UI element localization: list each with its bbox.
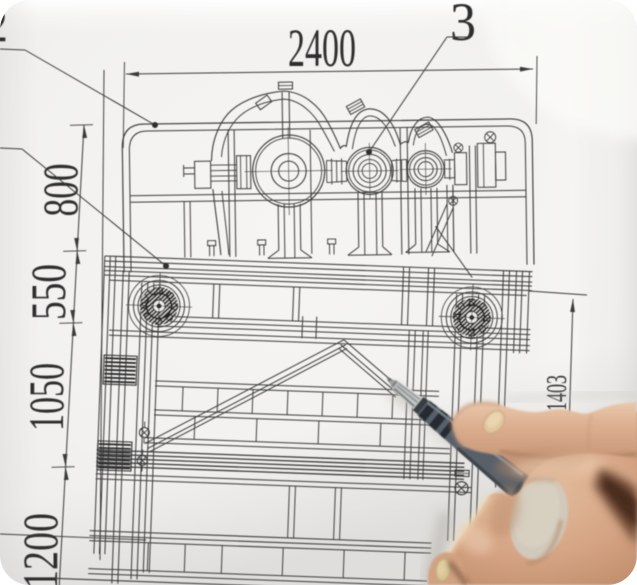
- svg-text:2400: 2400: [288, 18, 356, 78]
- svg-text:800: 800: [32, 164, 88, 217]
- svg-text:2: 2: [0, 0, 8, 52]
- svg-text:550: 550: [20, 264, 76, 320]
- svg-text:1200: 1200: [12, 513, 68, 585]
- svg-text:1050: 1050: [18, 363, 74, 431]
- svg-text:3: 3: [450, 0, 476, 52]
